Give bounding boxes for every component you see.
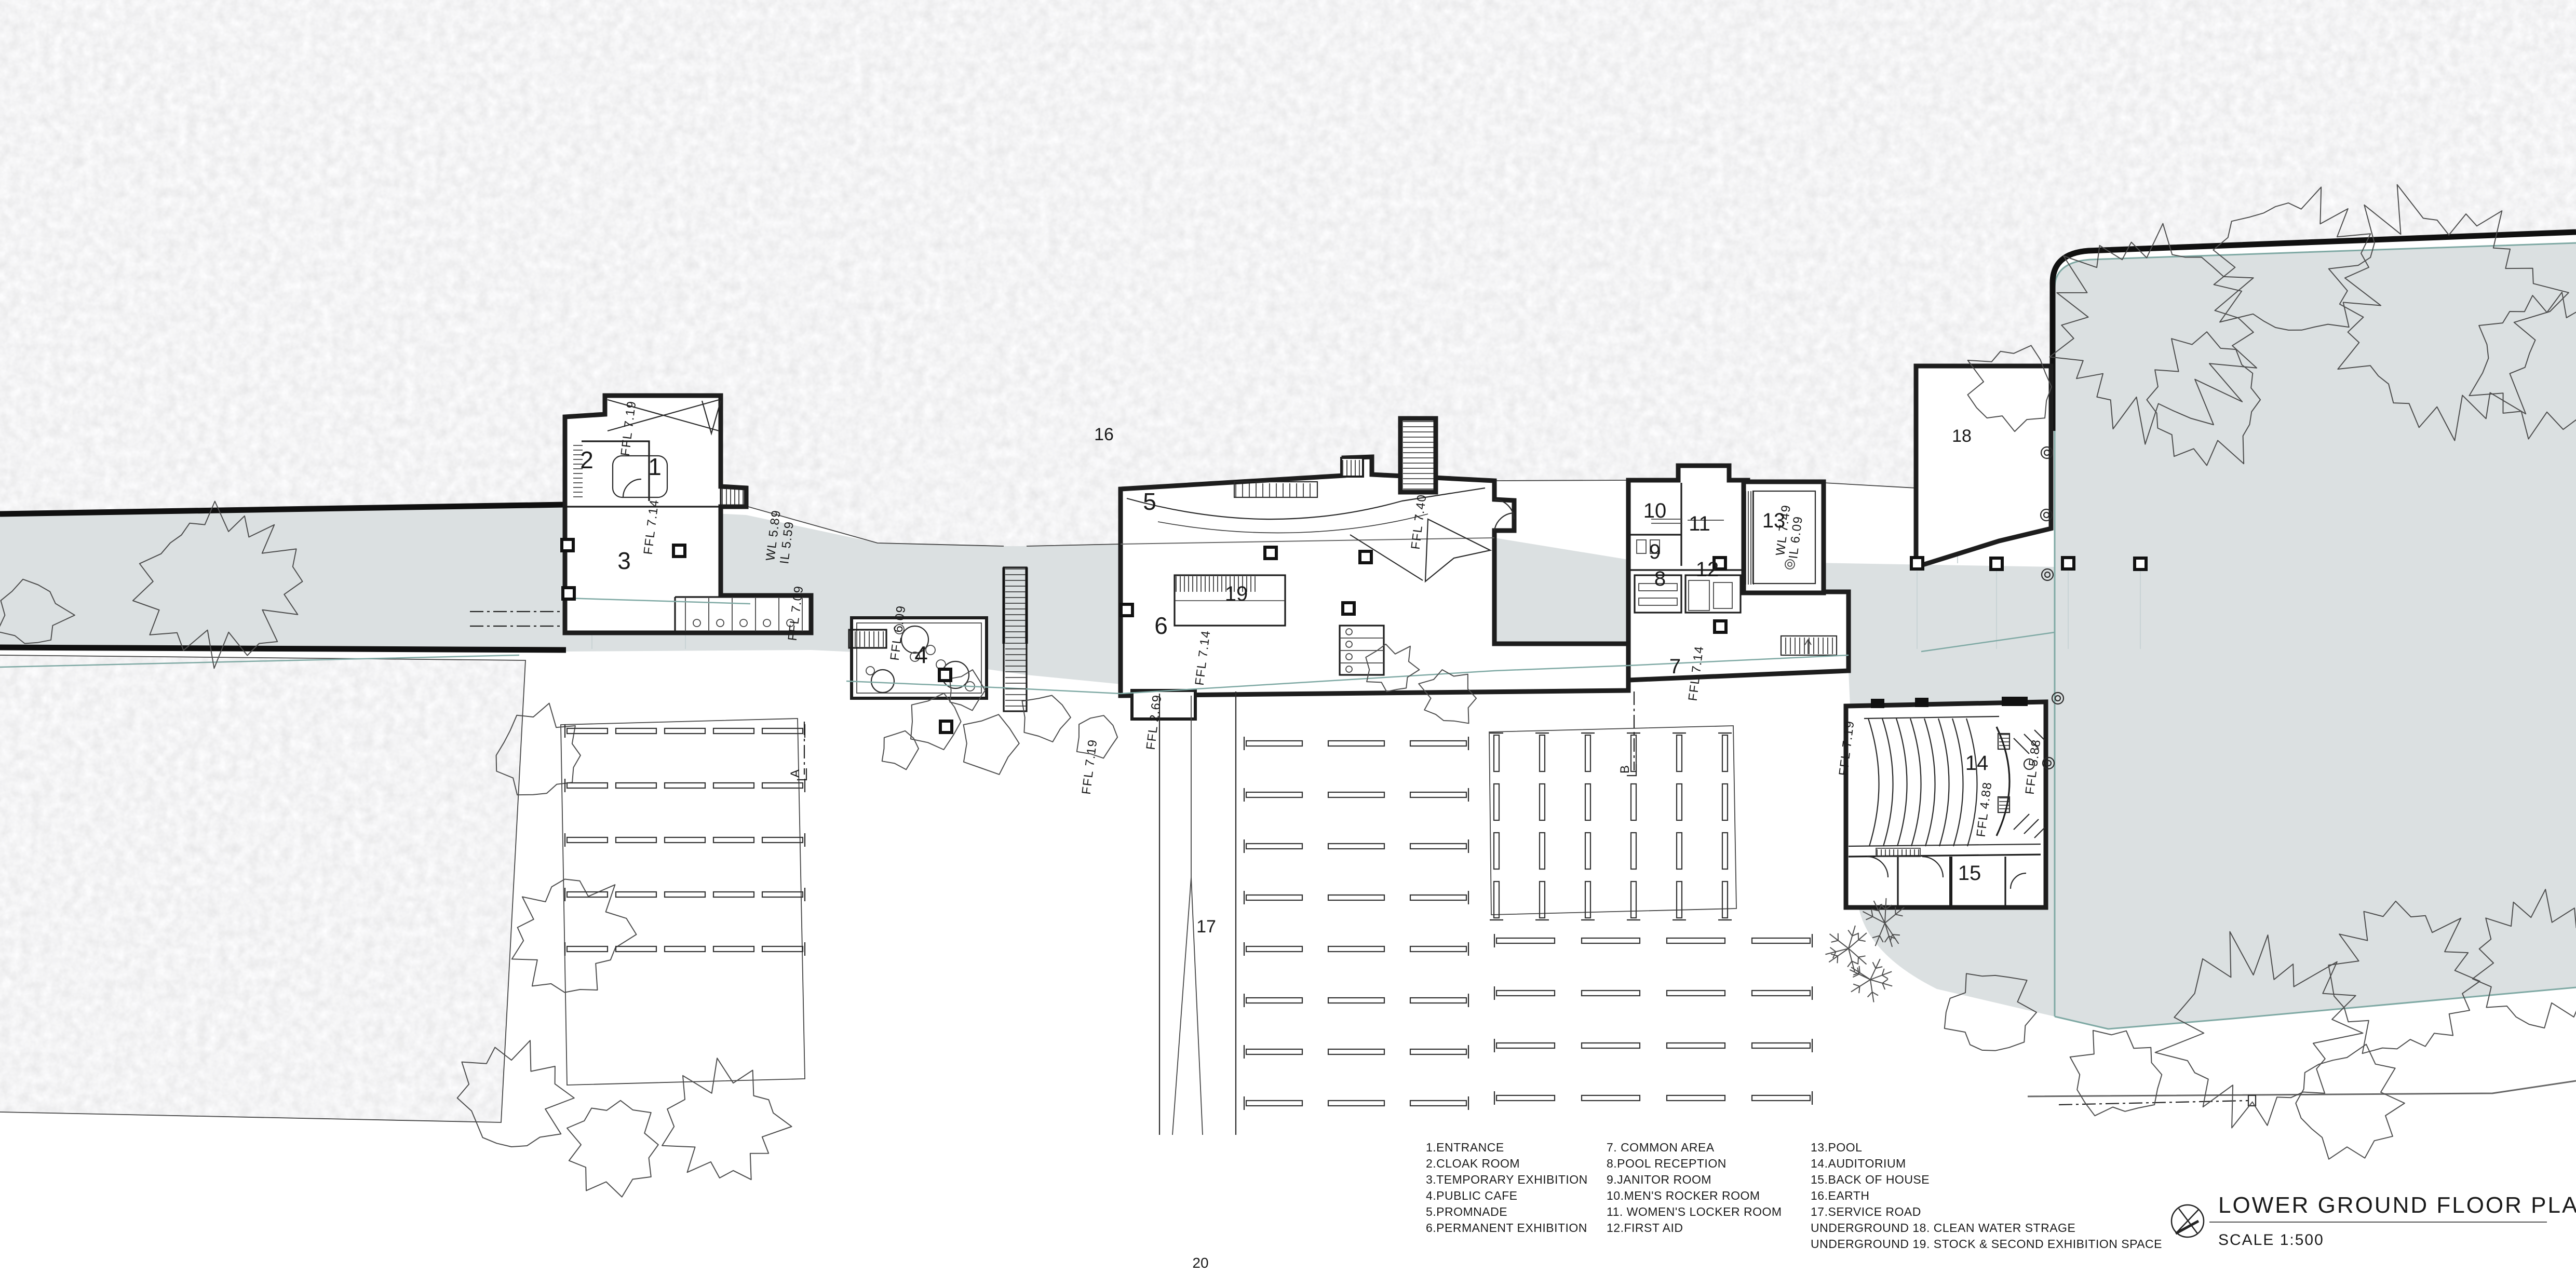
room-number-label: 10: [1643, 499, 1667, 522]
parking-bar: [1246, 998, 1302, 1003]
parking-bar: [567, 837, 608, 843]
parking-bar: [1410, 1049, 1466, 1054]
column-marker: [939, 669, 951, 681]
parking-bar: [1722, 784, 1728, 820]
room-number-label: 12: [1696, 558, 1719, 581]
parking-bar: [1585, 833, 1590, 869]
parking-bar: [1752, 938, 1810, 943]
parking-bar: [616, 783, 656, 788]
parking-bar: [762, 892, 803, 897]
room-number-label: 7: [1669, 655, 1681, 678]
auditorium-block: [1846, 697, 2046, 907]
room-number-label: 8: [1654, 567, 1666, 590]
parking-bar: [1328, 844, 1384, 849]
parking-bar: [762, 783, 803, 788]
parking-bar: [1328, 741, 1384, 746]
parking-bar: [1410, 741, 1466, 746]
tree-crown-icon: [512, 879, 637, 993]
parking-bar: [1494, 735, 1499, 771]
column-marker: [1991, 558, 2002, 570]
parking-bar: [1667, 938, 1725, 943]
column-marker: [2062, 558, 2074, 569]
parking-bar: [1540, 735, 1545, 771]
column-marker: [1265, 547, 1276, 559]
legend-item: 11. WOMEN'S LOCKER ROOM: [1607, 1205, 1782, 1218]
parking-bar: [1540, 833, 1545, 869]
parking-bar: [1328, 895, 1384, 900]
room-number-label: 5: [1143, 488, 1156, 515]
column-marker: [1715, 621, 1726, 632]
room-number-label: 9: [1649, 540, 1661, 563]
region-18-clean-water-storage: [1916, 366, 2051, 567]
parking-bar: [1246, 1049, 1302, 1054]
stair-chimney: [1400, 418, 1436, 492]
parking-bar: [713, 946, 754, 952]
parking-bar: [1631, 833, 1636, 869]
parking-bar: [1540, 784, 1545, 820]
legend-item: 3.TEMPORARY EXHIBITION: [1426, 1173, 1588, 1186]
parking-bar: [1722, 882, 1728, 918]
room-number-label: 6: [1154, 612, 1168, 639]
parking-bar: [1582, 1095, 1640, 1101]
rock-icon: [882, 731, 919, 770]
parking-bar: [1631, 784, 1636, 820]
parking-bar: [1410, 998, 1466, 1003]
parking-bar: [1722, 735, 1728, 771]
parking-bar: [665, 946, 705, 952]
parking-bar: [1585, 784, 1590, 820]
legend-item: 15.BACK OF HOUSE: [1811, 1173, 1930, 1186]
room-number-label: 16: [1094, 425, 1114, 444]
parking-bar: [1328, 998, 1384, 1003]
parking-bar: [616, 837, 656, 843]
room-number-label: 1: [648, 453, 662, 480]
legend-item: 5.PROMNADE: [1426, 1205, 1507, 1218]
legend-item: 16.EARTH: [1811, 1189, 1870, 1202]
parking-bar: [762, 837, 803, 843]
parking-bar: [665, 892, 705, 897]
parking-bar: [1246, 895, 1302, 900]
legend-item: 9.JANITOR ROOM: [1607, 1173, 1711, 1186]
parking-bar: [1496, 1043, 1555, 1048]
lower-room: [1132, 690, 1195, 719]
road-edge-bottom: [0, 647, 566, 650]
room-number-label: 17: [1196, 917, 1216, 937]
parking-bar: [1410, 895, 1466, 900]
column-marker: [1121, 604, 1132, 616]
parking-bar: [1677, 833, 1682, 869]
parking-bar: [665, 783, 705, 788]
drawing-scale: SCALE 1:500: [2218, 1231, 2324, 1249]
legend-item: 17.SERVICE ROAD: [1811, 1205, 1921, 1218]
column-marker: [2135, 558, 2146, 570]
pond: [2055, 243, 2576, 1029]
section-marker-layer: AB: [788, 692, 1636, 780]
parking-bar: [1667, 1043, 1725, 1048]
parking-bar: [1328, 792, 1384, 797]
underground-field-central: [1489, 726, 1736, 915]
parking-bar: [1246, 741, 1302, 746]
parking-bar: [1410, 946, 1466, 952]
legend-item: 7. COMMON AREA: [1607, 1141, 1715, 1154]
room-number-label: 3: [617, 547, 631, 574]
parking-bar: [1540, 882, 1545, 918]
parking-bar: [1328, 1101, 1384, 1106]
column-marker: [1360, 551, 1371, 563]
conifer-tree-icon: [1850, 959, 1892, 1002]
room-number-label: 4: [914, 641, 928, 668]
rock-icon: [964, 714, 1019, 775]
room-number-label: 11: [1689, 512, 1710, 535]
parking-bar: [567, 946, 608, 952]
room-number-label: 19: [1225, 582, 1248, 605]
column-marker: [1343, 603, 1354, 614]
site-boundary-line: [2028, 1081, 2576, 1096]
section-label: B: [1618, 764, 1632, 774]
room-number-label: 15: [1958, 862, 1981, 885]
legend-item: 10.MEN'S ROCKER ROOM: [1607, 1189, 1760, 1202]
column-marker: [563, 588, 574, 599]
tree-crown-icon: [567, 1101, 658, 1197]
parking-bar: [1582, 938, 1640, 943]
parking-bar: [616, 728, 656, 734]
parking-bar: [1752, 1043, 1810, 1048]
parking-bar: [1246, 1101, 1302, 1106]
legend-item: 13.POOL: [1811, 1141, 1862, 1154]
service-road: [1159, 692, 1236, 1135]
parking-bar: [713, 728, 754, 734]
level-label: FFL 7.19: [1080, 738, 1100, 795]
parking-bar: [1752, 1095, 1810, 1101]
room-number-label: 20: [1192, 1255, 1208, 1271]
parking-bar: [1677, 882, 1682, 918]
parking-bar: [1410, 1101, 1466, 1106]
underground-field-west: [561, 718, 805, 1085]
room-number-label: 2: [580, 446, 594, 473]
parking-bar: [1667, 991, 1725, 996]
parking-bar: [567, 783, 608, 788]
legend: 1.ENTRANCE2.CLOAK ROOM3.TEMPORARY EXHIBI…: [1426, 1141, 2162, 1251]
parking-bar: [665, 728, 705, 734]
parking-bar: [665, 837, 705, 843]
parking-bar: [1246, 946, 1302, 952]
conifer-tree-icon: [1825, 926, 1866, 972]
parking-bar: [616, 946, 656, 952]
legend-item: 8.POOL RECEPTION: [1607, 1157, 1727, 1170]
parking-bar: [1677, 784, 1682, 820]
legend-item: 14.AUDITORIUM: [1811, 1157, 1906, 1170]
legend-item: 2.CLOAK ROOM: [1426, 1157, 1520, 1170]
pond-datum-line: [2059, 1101, 2248, 1105]
parking-bar: [1494, 784, 1499, 820]
parking-bar: [762, 728, 803, 734]
legend-item: 4.PUBLIC CAFE: [1426, 1189, 1518, 1202]
tree-crown-icon: [662, 1058, 792, 1179]
parking-bar: [1582, 991, 1640, 996]
legend-item: 1.ENTRANCE: [1426, 1141, 1504, 1154]
parking-bar: [616, 892, 656, 897]
drawing-title: LOWER GROUND FLOOR PLAN: [2218, 1192, 2576, 1218]
rock-icon: [911, 693, 961, 750]
parking-bar: [1585, 735, 1590, 771]
parking-bar: [1246, 792, 1302, 797]
column-marker: [562, 539, 573, 551]
parking-bar: [1410, 844, 1466, 849]
parking-bar: [1667, 1095, 1725, 1101]
room-number-label: 14: [1965, 752, 1989, 775]
room-number-label: 18: [1952, 426, 1972, 446]
parking-bar: [1496, 1095, 1555, 1101]
parking-bar: [1328, 946, 1384, 952]
parking-bar: [713, 837, 754, 843]
parking-bar: [713, 783, 754, 788]
parking-bar: [1410, 792, 1466, 797]
parking-bar: [1494, 882, 1499, 918]
tree-crown-icon: [2296, 1045, 2405, 1159]
parking-bar: [1631, 882, 1636, 918]
parking-bar: [1496, 938, 1555, 943]
parking-bar: [1582, 1043, 1640, 1048]
parking-bar: [1752, 991, 1810, 996]
legend-item: 6.PERMANENT EXHIBITION: [1426, 1221, 1587, 1235]
parking-bar: [1246, 844, 1302, 849]
parking-bar: [567, 728, 608, 734]
datum-flag: [2248, 1095, 2256, 1106]
parking-bar: [1722, 833, 1728, 869]
legend-item: UNDERGROUND 19. STOCK & SECOND EXHIBITIO…: [1811, 1237, 2162, 1251]
parking-bar: [1496, 991, 1555, 996]
legend-item: 12.FIRST AID: [1607, 1221, 1683, 1235]
parking-bar: [1328, 1049, 1384, 1054]
compass-needle: [2176, 1221, 2199, 1233]
section-label: A: [788, 768, 802, 778]
column-marker: [940, 721, 952, 733]
parking-bar: [762, 946, 803, 952]
parking-bar: [1677, 735, 1682, 771]
parking-bar: [1494, 833, 1499, 869]
column-marker: [673, 545, 685, 557]
column-marker: [1911, 558, 1923, 569]
parking-bar: [713, 892, 754, 897]
floor-plan-canvas: AB 1234567891011121314151617181920FFL 7.…: [0, 0, 2576, 1288]
legend-item: UNDERGROUND 18. CLEAN WATER STRAGE: [1811, 1221, 2075, 1235]
rock-icon: [1022, 696, 1071, 742]
title-block: LOWER GROUND FLOOR PLAN SCALE 1:500: [2172, 1192, 2576, 1249]
